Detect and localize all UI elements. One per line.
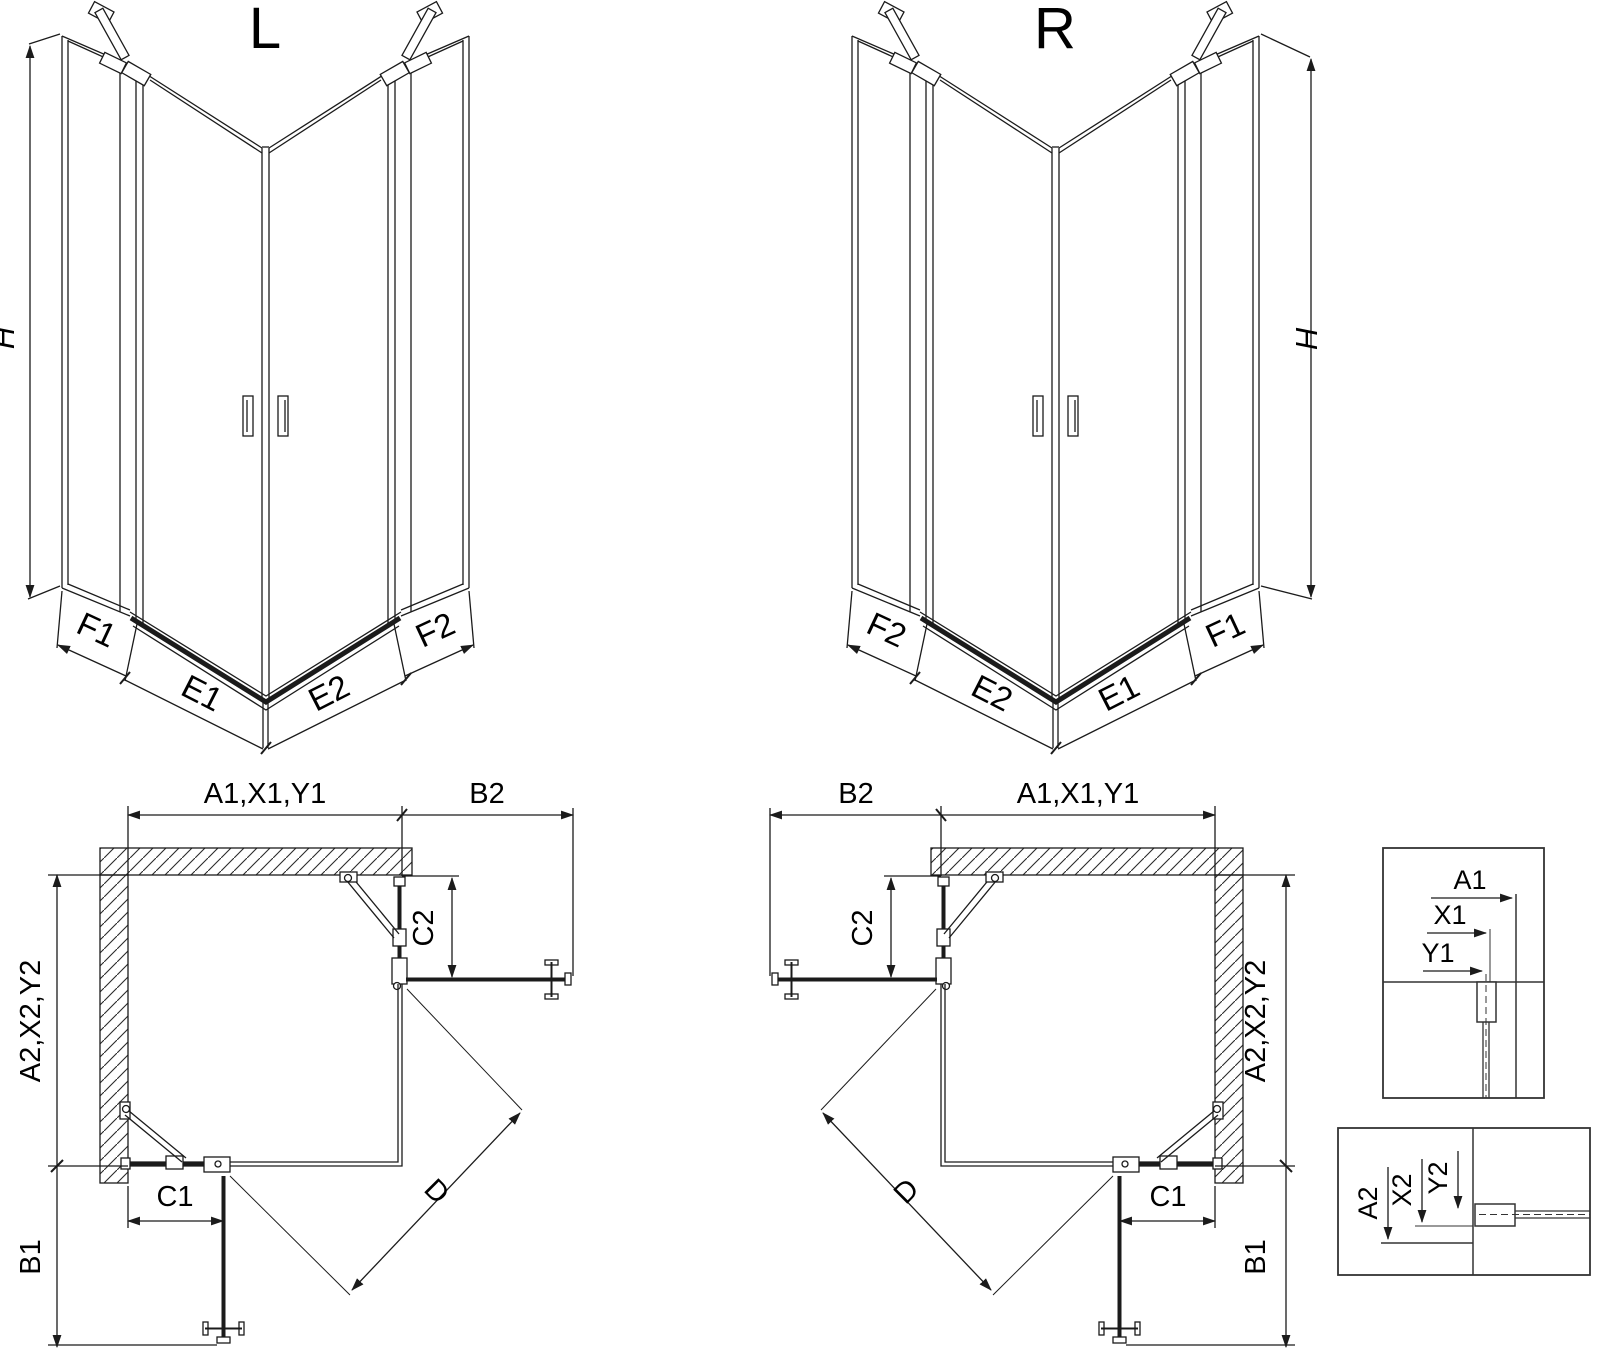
iso-left-title: L	[249, 0, 281, 61]
wall-side	[1215, 875, 1243, 1183]
detail-label-y1: Y1	[1421, 938, 1454, 968]
plan-right-label-b2: B2	[838, 778, 873, 810]
plan-left-label-a1: A1,X1,Y1	[204, 778, 327, 810]
plan-right-label-a1: A1,X1,Y1	[1017, 778, 1140, 810]
iso-right-title: R	[1034, 0, 1076, 61]
detail-label-x2: X2	[1387, 1173, 1417, 1206]
detail-label-a1: A1	[1453, 865, 1486, 895]
plan-right-label-c2: C2	[847, 909, 879, 946]
detail-label-x1: X1	[1433, 900, 1466, 930]
iso-right-height-label: H	[1289, 327, 1324, 350]
plan-left-label-c1: C1	[156, 1181, 193, 1213]
drawing-sheet: L H F1 E1 E2 F2 R H F2 E2 E1 F1 A1,X1,Y1…	[0, 0, 1600, 1359]
plan-left-label-b1: B1	[15, 1239, 47, 1274]
plan-right-label-b1: B1	[1240, 1239, 1272, 1274]
plan-right-label-c1: C1	[1149, 1181, 1186, 1213]
detail-label-y2: Y2	[1423, 1161, 1453, 1194]
iso-left-height-label: H	[0, 326, 21, 349]
wall-top	[931, 848, 1243, 875]
plan-left-label-c2: C2	[408, 909, 440, 946]
plan-right-label-a2: A2,X2,Y2	[1240, 960, 1272, 1083]
wall-top	[100, 848, 412, 875]
wall-side	[100, 875, 128, 1183]
detail-label-a2: A2	[1353, 1186, 1383, 1219]
plan-left-label-a2: A2,X2,Y2	[15, 960, 47, 1083]
plan-left-label-b2: B2	[469, 778, 504, 810]
technical-drawing-canvas: L H F1 E1 E2 F2 R H F2 E2 E1 F1 A1,X1,Y1…	[0, 0, 1600, 1359]
